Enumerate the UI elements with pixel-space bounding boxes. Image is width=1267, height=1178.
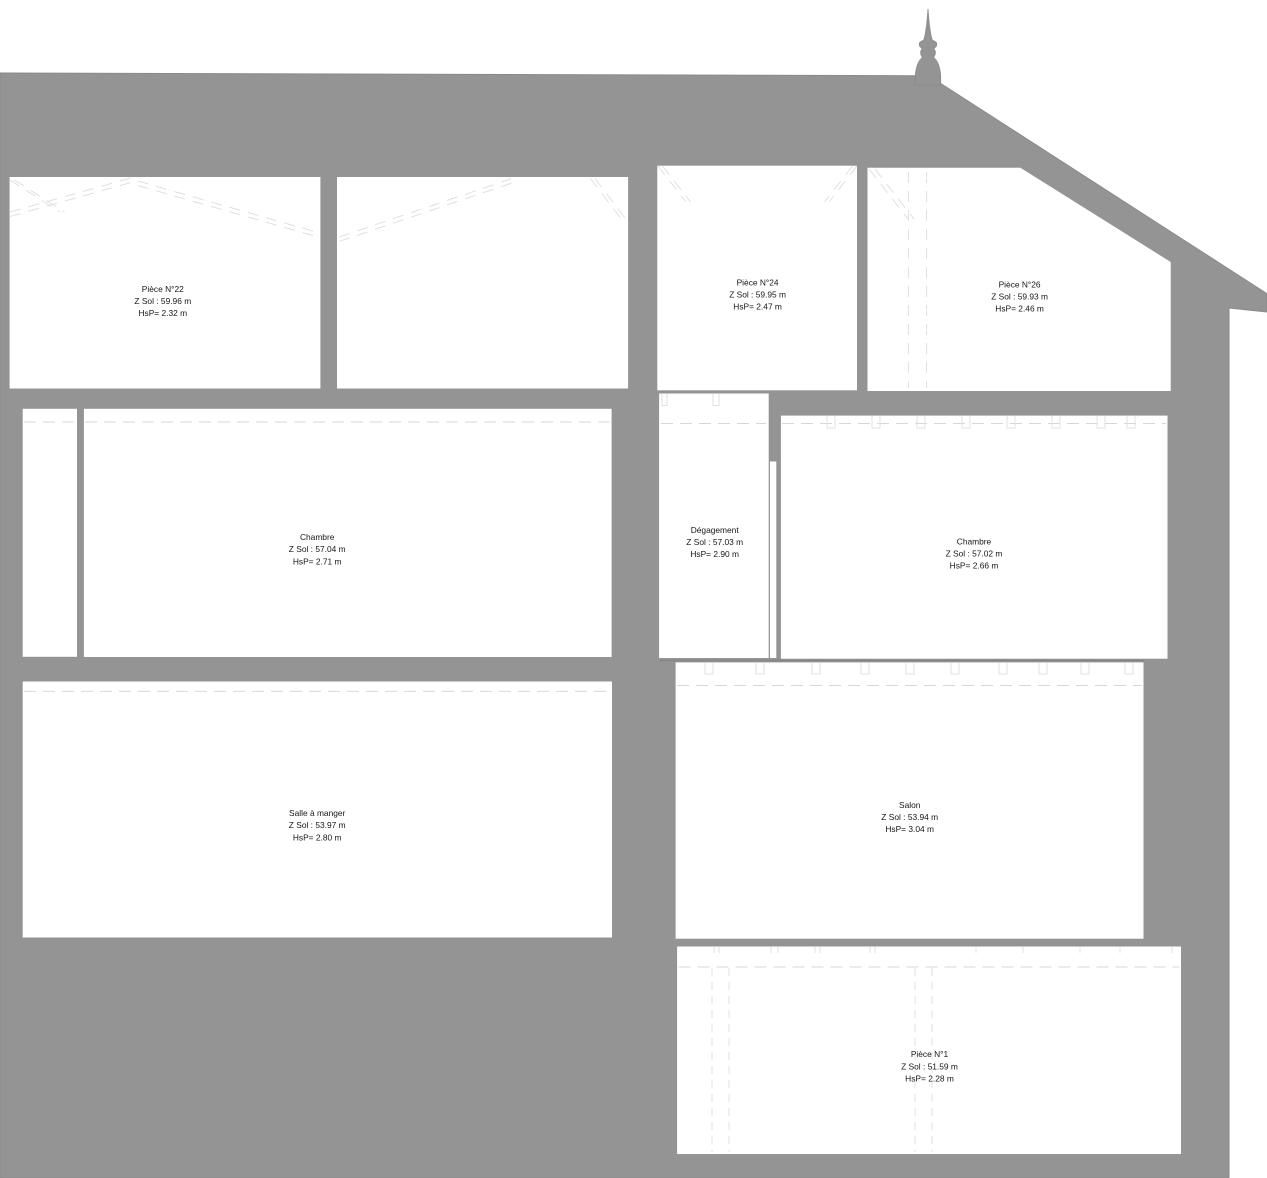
svg-text:HsP= 3.04 m: HsP= 3.04 m (885, 824, 934, 834)
svg-text:HsP= 2.90 m: HsP= 2.90 m (690, 549, 739, 559)
svg-text:Z Sol : 57.02 m: Z Sol : 57.02 m (946, 548, 1003, 558)
svg-text:Chambre: Chambre (957, 536, 992, 546)
svg-text:HsP= 2.28 m: HsP= 2.28 m (905, 1073, 954, 1083)
svg-text:HsP= 2.66 m: HsP= 2.66 m (950, 561, 999, 571)
svg-text:Z Sol : 59.93 m: Z Sol : 59.93 m (991, 292, 1048, 302)
svg-text:Pièce N°26: Pièce N°26 (999, 279, 1041, 289)
svg-text:HsP= 2.47 m: HsP= 2.47 m (733, 301, 782, 311)
svg-text:Z Sol : 59.96 m: Z Sol : 59.96 m (134, 296, 191, 306)
svg-text:Pièce N°22: Pièce N°22 (142, 284, 184, 294)
svg-text:HsP= 2.71 m: HsP= 2.71 m (293, 556, 342, 566)
svg-text:Z Sol : 57.04 m: Z Sol : 57.04 m (289, 544, 346, 554)
svg-text:Z Sol : 53.97 m: Z Sol : 53.97 m (289, 820, 346, 830)
svg-text:Salon: Salon (899, 800, 921, 810)
svg-text:HsP= 2.80 m: HsP= 2.80 m (293, 832, 342, 842)
svg-text:Pièce N°1: Pièce N°1 (911, 1049, 949, 1059)
svg-text:Z Sol : 53.94 m: Z Sol : 53.94 m (881, 812, 938, 822)
svg-text:HsP= 2.32 m: HsP= 2.32 m (138, 308, 187, 318)
svg-text:Chambre: Chambre (300, 532, 335, 542)
svg-text:Dégagement: Dégagement (691, 525, 740, 535)
svg-text:Z Sol : 51.59 m: Z Sol : 51.59 m (901, 1061, 958, 1071)
svg-text:Salle à manger: Salle à manger (289, 808, 346, 818)
svg-text:Z Sol : 59.95 m: Z Sol : 59.95 m (729, 290, 786, 300)
svg-text:Pièce N°24: Pièce N°24 (737, 278, 779, 288)
svg-text:Z Sol : 57.03 m: Z Sol : 57.03 m (686, 537, 743, 547)
svg-text:HsP= 2.46 m: HsP= 2.46 m (995, 304, 1044, 314)
